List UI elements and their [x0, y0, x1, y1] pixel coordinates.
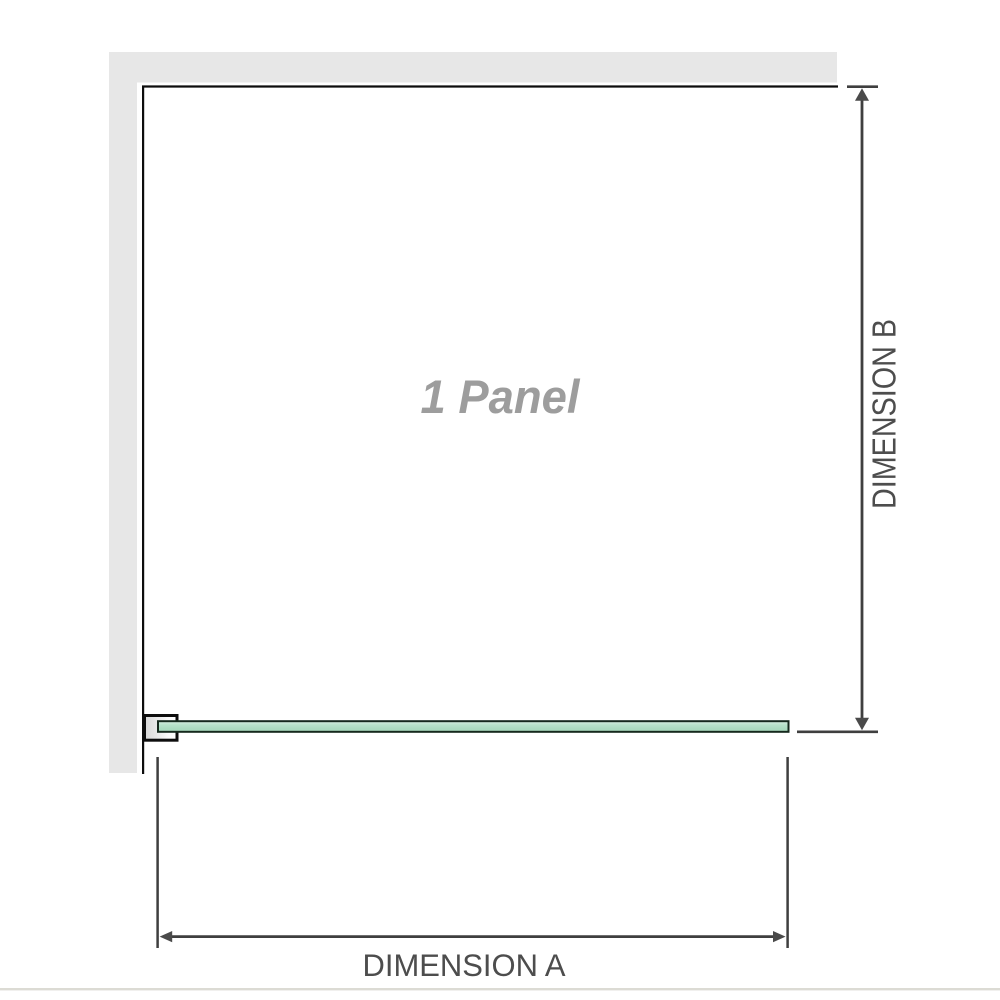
svg-text:1 Panel: 1 Panel: [421, 370, 581, 423]
svg-text:DIMENSION B: DIMENSION B: [866, 319, 903, 509]
svg-text:DIMENSION A: DIMENSION A: [363, 947, 566, 983]
